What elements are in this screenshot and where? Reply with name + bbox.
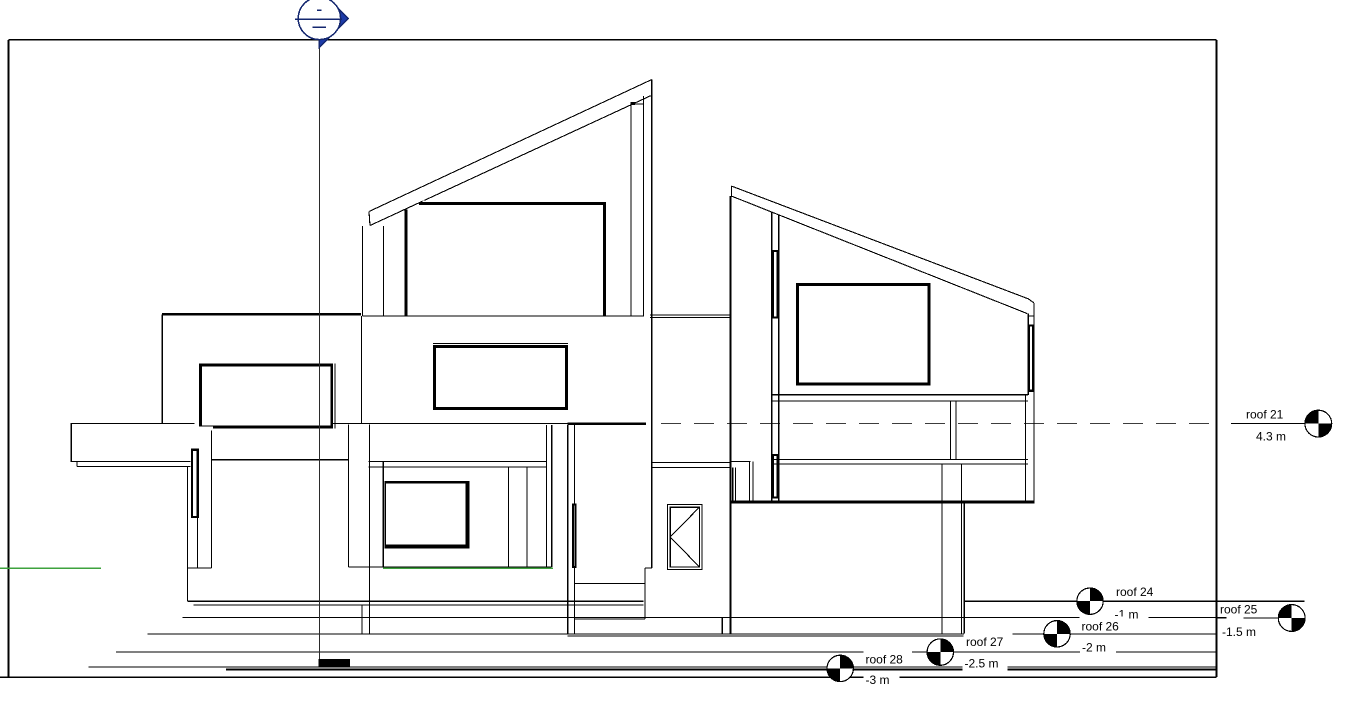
svg-text:roof 26: roof 26: [1082, 620, 1120, 634]
svg-text:roof 21: roof 21: [1246, 408, 1284, 422]
svg-text:4.3 m: 4.3 m: [1256, 430, 1286, 444]
svg-text:roof 27: roof 27: [966, 635, 1004, 649]
svg-text:roof 28: roof 28: [866, 653, 904, 667]
svg-text:roof 24: roof 24: [1116, 585, 1154, 599]
svg-text:-3 m: -3 m: [866, 673, 890, 687]
svg-text:-2.5 m: -2.5 m: [965, 657, 999, 671]
svg-text:-2 m: -2 m: [1082, 641, 1106, 655]
svg-text:roof 25: roof 25: [1220, 603, 1258, 617]
svg-text:-1.5 m: -1.5 m: [1222, 625, 1256, 639]
